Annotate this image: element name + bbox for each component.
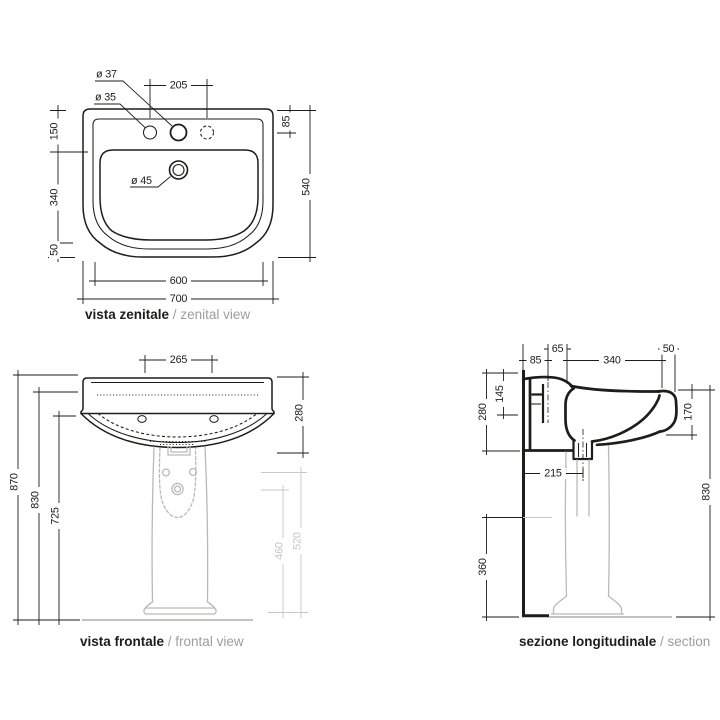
dim-tap-spacing: 205 [144,79,213,118]
caption-frontal-en: frontal view [175,634,243,649]
pedestal-plinth [144,608,216,614]
pedestal-drain-inner [175,486,181,492]
dim-inner-width: 600 [89,262,268,287]
basin-inner-rim [93,119,263,249]
svg-text:205: 205 [170,80,188,92]
svg-text:520: 520 [292,532,304,550]
svg-text:830: 830 [30,491,42,509]
caption-zenital: vista zenitale / zenital view [85,307,250,323]
svg-text:600: 600 [170,275,188,287]
caption-frontal-sep: / [164,634,175,649]
tap-hole-right-dashed [201,126,214,139]
tap-hole-center [171,125,187,141]
frontal-view: 265 870 830 725 [9,354,310,625]
label-drain: ø 45 [131,175,152,187]
svg-text:870: 870 [9,473,21,491]
label-rim-height-section: 830 [701,483,713,501]
bowl-outline [100,150,258,240]
front-lip [658,391,676,432]
label-apron-height: 170 [683,403,695,421]
bowl-inner-back [566,389,575,441]
dim-right-section: 170 830 [666,384,715,621]
basin-section-profile [524,377,676,481]
zenital-view: ø 37 ø 35 ø 45 205 150 340 50 [48,69,316,306]
basin-outer-outline [83,109,273,257]
bowl-underside-arc-inner [88,414,267,443]
drain-hole-inner [173,165,184,176]
dim-total-height: 870 [9,370,81,625]
dim-left-section: 145 280 360 [477,369,552,621]
dim-underside-height: 725 [50,411,77,625]
caption-section-sep: / [656,634,667,649]
svg-text:215: 215 [544,468,562,480]
leader-tap-hole-side [94,104,146,128]
pedestal-drain-outer [172,483,183,494]
label-tap-hole-side: ø 35 [95,92,116,104]
drain-hole-outer [170,161,188,179]
drawing-canvas: ø 37 ø 35 ø 45 205 150 340 50 [0,0,720,720]
label-wall-offset: 85 [530,355,542,367]
section-view: 85 65 340 50 145 [477,343,715,621]
label-bowl-length: 340 [603,355,621,367]
caption-section-it: sezione longitudinale [519,634,656,649]
fixing-hole-left [138,416,146,423]
label-bolt-offset: 65 [552,343,564,355]
label-bowl-depth: 340 [49,189,61,207]
wall-line [522,370,549,616]
deck-top [524,377,574,388]
label-front-edge: 50 [49,244,61,256]
label-back-depth: 150 [49,123,61,141]
label-front-edge-section: 50 [663,343,675,355]
pedestal-front [144,447,216,614]
label-basin-depth: 280 [477,403,489,421]
svg-text:280: 280 [294,404,306,422]
label-tap-hole-center: ø 37 [96,69,117,81]
dim-basin-height: 280 [277,372,309,458]
svg-text:85: 85 [281,116,293,128]
drain-fitting-inner [579,443,587,457]
technical-drawing-sheet: ø 37 ø 35 ø 45 205 150 340 50 [0,0,720,720]
caption-section: sezione longitudinale / section [519,634,710,650]
dim-drain-offset: 215 [523,468,583,480]
basin-front-outline [81,378,274,414]
svg-text:265: 265 [170,354,188,366]
dim-tap-spacing-frontal: 265 [139,354,218,373]
pedestal-dashed-inner [159,448,195,518]
svg-text:460: 460 [274,542,286,560]
label-deck-drop: 145 [494,385,506,403]
svg-text:540: 540 [301,178,313,196]
label-trap-height: 360 [477,558,489,576]
caption-zenital-sep: / [169,307,180,322]
fixing-hole-right [210,416,218,423]
caption-zenital-it: vista zenitale [85,307,169,322]
pedestal-hole-left [163,469,170,476]
caption-section-en: section [668,634,711,649]
dim-pedestal-inner-height: 460 [261,485,289,618]
rim-top [571,386,660,392]
caption-zenital-en: zenital view [180,307,250,322]
svg-text:725: 725 [50,507,62,525]
caption-frontal-it: vista frontale [80,634,164,649]
dim-left-chain: 150 340 50 [48,105,88,262]
caption-frontal: vista frontale / frontal view [80,634,244,650]
svg-text:700: 700 [170,293,188,305]
